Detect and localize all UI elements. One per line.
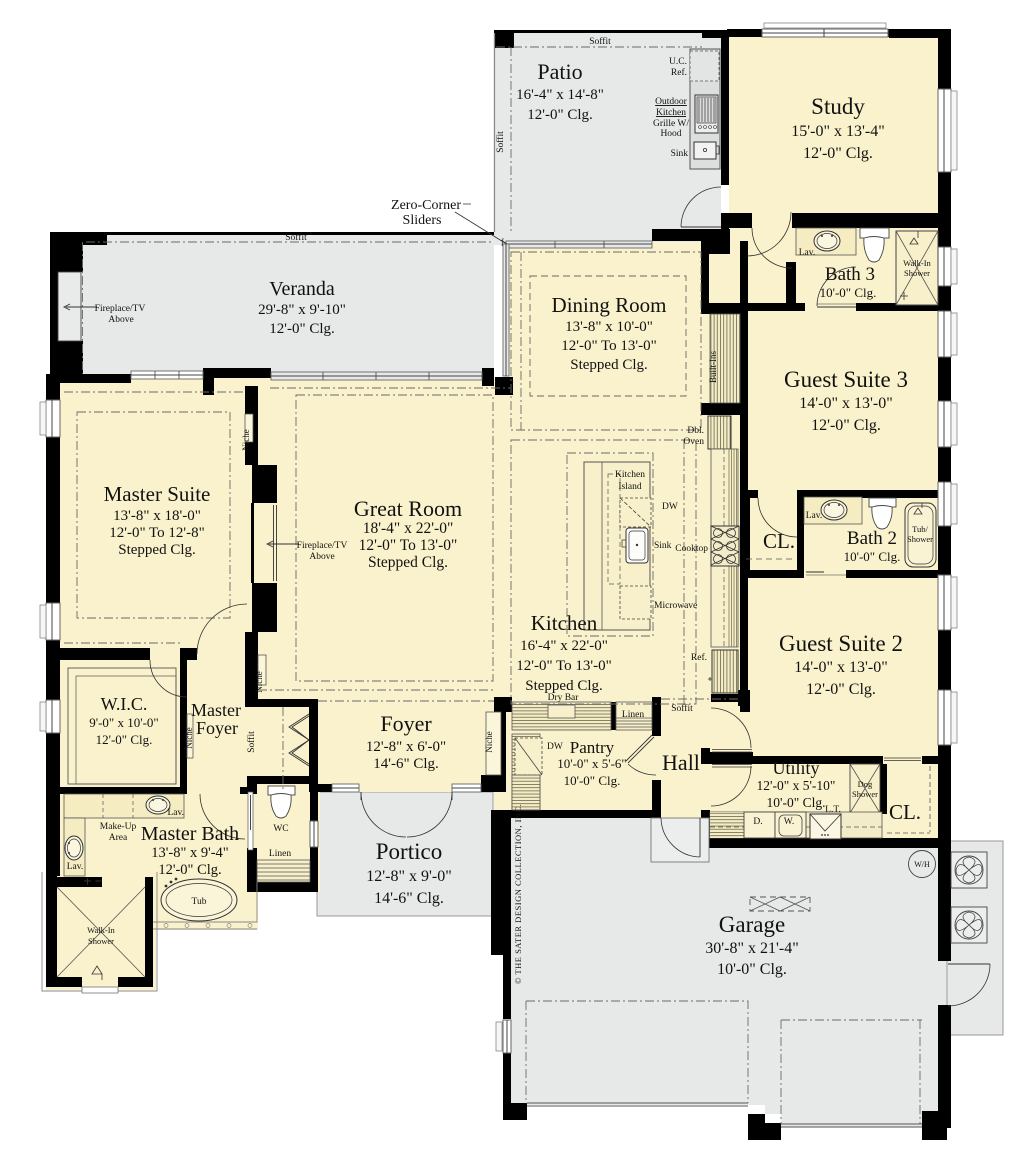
svg-text:Island: Island (618, 482, 641, 492)
svg-text:Niche: Niche (484, 731, 494, 753)
svg-text:30'-8" x 21'-4": 30'-8" x 21'-4" (705, 940, 798, 957)
svg-text:D.: D. (753, 817, 762, 827)
svg-text:12'-0" Clg.: 12'-0" Clg. (527, 107, 593, 123)
svg-text:10'-0" Clg.: 10'-0" Clg. (844, 549, 901, 564)
svg-text:Lav.: Lav. (167, 808, 184, 818)
svg-text:Walk-In: Walk-In (903, 258, 931, 268)
svg-text:Lav.: Lav. (799, 248, 816, 258)
svg-text:Soffit: Soffit (246, 731, 257, 753)
svg-text:Stepped Clg.: Stepped Clg. (525, 678, 603, 694)
svg-text:Zero-Corner: Zero-Corner (391, 198, 461, 213)
svg-text:12'-0" To 13'-0": 12'-0" To 13'-0" (561, 338, 657, 354)
svg-text:Pantry: Pantry (570, 738, 615, 757)
svg-text:Fireplace/TV: Fireplace/TV (297, 541, 348, 551)
svg-text:DW: DW (662, 502, 678, 512)
svg-text:Linen: Linen (269, 849, 291, 859)
svg-text:Bath 2: Bath 2 (847, 528, 897, 549)
svg-text:Niche: Niche (254, 671, 264, 693)
svg-text:© THE SATER DESIGN COLLECTION,: © THE SATER DESIGN COLLECTION, INC. (513, 804, 523, 984)
svg-text:14'-0" x 13'-0": 14'-0" x 13'-0" (799, 395, 892, 412)
svg-text:Foyer: Foyer (380, 711, 432, 736)
svg-text:Master Suite: Master Suite (104, 482, 211, 506)
svg-text:Outdoor: Outdoor (655, 97, 688, 107)
svg-text:10'-0" Clg.: 10'-0" Clg. (820, 285, 877, 300)
svg-text:Ref.: Ref. (691, 652, 707, 663)
svg-text:14'-0" x 13'-0": 14'-0" x 13'-0" (794, 659, 887, 676)
svg-text:10'-0" Clg.: 10'-0" Clg. (564, 773, 621, 788)
svg-text:12'-8" x 9'-0": 12'-8" x 9'-0" (366, 868, 451, 885)
svg-text:Niche: Niche (184, 727, 194, 749)
svg-text:Fireplace/TV: Fireplace/TV (95, 304, 146, 314)
svg-text:Portico: Portico (376, 839, 442, 864)
svg-text:L.T.: L.T. (825, 805, 841, 815)
svg-text:Make-Up: Make-Up (100, 822, 137, 832)
svg-text:Utility: Utility (772, 758, 819, 778)
svg-text:Soffit: Soffit (671, 703, 693, 714)
svg-text:Master Bath: Master Bath (141, 823, 239, 845)
svg-text:Master: Master (191, 700, 241, 720)
svg-text:Stepped Clg.: Stepped Clg. (570, 357, 648, 373)
svg-text:14'-6" Clg.: 14'-6" Clg. (374, 890, 444, 907)
svg-text:Dbl.: Dbl. (687, 426, 704, 436)
svg-text:CL.: CL. (889, 800, 921, 824)
svg-text:Hall: Hall (662, 750, 700, 775)
svg-text:DW: DW (547, 742, 563, 752)
svg-text:12'-0" Clg.: 12'-0" Clg. (96, 732, 153, 747)
svg-text:13'-8" x 18'-0": 13'-8" x 18'-0" (113, 508, 201, 524)
svg-text:Lav.: Lav. (806, 511, 823, 521)
svg-text:Tub: Tub (192, 897, 207, 907)
svg-text:13'-8" x 9'-4": 13'-8" x 9'-4" (151, 845, 229, 861)
svg-text:Kitchen: Kitchen (656, 108, 686, 118)
svg-text:Foyer: Foyer (196, 718, 238, 738)
svg-text:12'-0" Clg.: 12'-0" Clg. (158, 862, 221, 878)
svg-text:Sink: Sink (671, 149, 689, 159)
svg-text:16'-4" x 22'-0": 16'-4" x 22'-0" (520, 638, 608, 654)
svg-text:29'-8" x 9'-10": 29'-8" x 9'-10" (258, 302, 346, 318)
svg-text:Dog: Dog (858, 779, 873, 789)
svg-text:W.I.C.: W.I.C. (101, 694, 148, 714)
svg-text:Kitchen: Kitchen (615, 470, 645, 480)
svg-text:12'-0" x 5'-10": 12'-0" x 5'-10" (757, 778, 836, 793)
svg-text:13'-8" x 10'-0": 13'-8" x 10'-0" (565, 319, 653, 335)
svg-text:Bath 3: Bath 3 (825, 264, 875, 285)
svg-text:CL.: CL. (763, 529, 795, 553)
svg-text:Oven: Oven (683, 437, 704, 447)
svg-text:Guest Suite 2: Guest Suite 2 (779, 631, 903, 656)
svg-text:U.C.: U.C. (669, 57, 687, 67)
svg-text:Ref.: Ref. (671, 67, 687, 78)
svg-text:Linen: Linen (622, 710, 644, 720)
svg-text:10'-0" Clg.: 10'-0" Clg. (717, 961, 787, 978)
svg-text:Sliders: Sliders (403, 213, 442, 228)
svg-text:Dining Room: Dining Room (552, 293, 667, 317)
svg-text:W.: W. (784, 817, 794, 827)
svg-text:Patio: Patio (537, 59, 582, 84)
svg-text:15'-0" x 13'-4": 15'-0" x 13'-4" (791, 123, 884, 140)
svg-text:Walk-In: Walk-In (87, 925, 115, 935)
svg-text:Guest Suite 3: Guest Suite 3 (784, 367, 908, 392)
svg-text:W/H: W/H (914, 860, 930, 869)
svg-text:Lav.: Lav. (67, 862, 84, 872)
svg-text:12'-0" To 13'-0": 12'-0" To 13'-0" (516, 658, 612, 674)
svg-text:Veranda: Veranda (269, 278, 335, 300)
svg-text:Study: Study (811, 94, 865, 119)
svg-text:12'-0" To 13'-0": 12'-0" To 13'-0" (359, 537, 458, 554)
svg-text:Shower: Shower (904, 268, 930, 278)
svg-text:12'-0" To 12'-8": 12'-0" To 12'-8" (109, 525, 205, 541)
svg-text:10'-0" Clg.: 10'-0" Clg. (767, 795, 826, 810)
svg-text:Tub/: Tub/ (912, 524, 928, 534)
svg-text:Built-Ins: Built-Ins (708, 351, 718, 383)
svg-text:Above: Above (309, 552, 334, 562)
svg-text:WC: WC (273, 824, 288, 834)
svg-text:Great Room: Great Room (354, 496, 462, 521)
svg-text:Niche: Niche (241, 429, 251, 451)
svg-text:10'-0" x 5'-6": 10'-0" x 5'-6" (557, 756, 626, 771)
svg-text:12'-0" Clg.: 12'-0" Clg. (269, 321, 335, 337)
svg-text:12'-0" Clg.: 12'-0" Clg. (811, 417, 881, 434)
svg-text:18'-4" x 22'-0": 18'-4" x 22'-0" (363, 520, 454, 537)
svg-text:Stepped Clg.: Stepped Clg. (118, 542, 196, 558)
svg-text:Shower: Shower (907, 534, 933, 544)
svg-text:12'-0" Clg.: 12'-0" Clg. (803, 145, 873, 162)
svg-text:Garage: Garage (719, 912, 785, 937)
svg-text:Hood: Hood (660, 129, 681, 139)
svg-text:14'-6" Clg.: 14'-6" Clg. (373, 756, 439, 772)
svg-text:Stepped Clg.: Stepped Clg. (368, 554, 448, 571)
svg-text:Above: Above (108, 315, 133, 325)
svg-text:Shower: Shower (852, 789, 878, 799)
svg-text:Area: Area (109, 833, 128, 843)
svg-text:12'-8" x 6'-0": 12'-8" x 6'-0" (366, 739, 446, 755)
svg-text:12'-0" Clg.: 12'-0" Clg. (806, 681, 876, 698)
svg-text:Soffit: Soffit (495, 131, 506, 153)
svg-text:Cooktop: Cooktop (675, 544, 708, 554)
svg-text:Dry Bar: Dry Bar (548, 693, 580, 703)
svg-text:Grille W/: Grille W/ (653, 119, 689, 129)
svg-text:Sink: Sink (654, 541, 672, 551)
svg-text:Microwave: Microwave (654, 601, 697, 611)
svg-text:9'-0" x 10'-0": 9'-0" x 10'-0" (89, 715, 158, 730)
svg-text:16'-4" x 14'-8": 16'-4" x 14'-8" (516, 87, 604, 103)
svg-text:Shower: Shower (88, 936, 114, 946)
svg-text:Soffit: Soffit (285, 232, 307, 243)
svg-text:Soffit: Soffit (589, 36, 611, 47)
svg-text:Kitchen: Kitchen (531, 611, 598, 635)
